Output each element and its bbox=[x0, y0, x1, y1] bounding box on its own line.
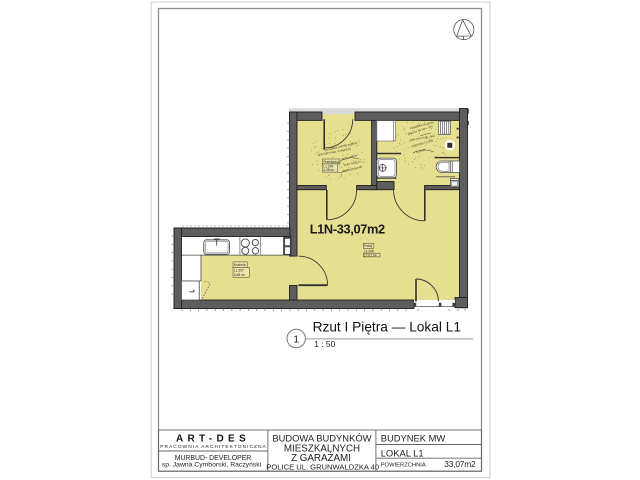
svg-text:1 : 50: 1 : 50 bbox=[314, 339, 335, 349]
svg-text:L1.207: L1.207 bbox=[234, 269, 244, 273]
svg-text:33,07m2: 33,07m2 bbox=[444, 459, 476, 469]
svg-text:4,38 m²: 4,38 m² bbox=[323, 168, 334, 172]
svg-text:1: 1 bbox=[293, 333, 299, 345]
svg-text:sp. Jawna Cymborski, Raczyński: sp. Jawna Cymborski, Raczyński bbox=[162, 462, 262, 469]
svg-text:BUDYNEK MW: BUDYNEK MW bbox=[381, 433, 446, 444]
svg-text:LOKAL L1: LOKAL L1 bbox=[381, 448, 424, 459]
svg-text:6,48 m²: 6,48 m² bbox=[234, 273, 245, 277]
svg-text:L1N-33,07m2: L1N-33,07m2 bbox=[310, 221, 385, 236]
svg-text:17,01 m²: 17,01 m² bbox=[364, 253, 377, 257]
svg-text:Pokój: Pokój bbox=[364, 244, 372, 248]
svg-text:Kuchnia: Kuchnia bbox=[234, 263, 246, 267]
svg-text:PRACOWNIA ARCHITEKTONICZNA: PRACOWNIA ARCHITEKTONICZNA bbox=[160, 444, 267, 450]
svg-text:ART-DES: ART-DES bbox=[176, 433, 250, 444]
svg-text:BUDOWA BUDYNKÓW: BUDOWA BUDYNKÓW bbox=[272, 433, 371, 444]
svg-text:POLICE UL. GRUNWALDZKA 40: POLICE UL. GRUNWALDZKA 40 bbox=[266, 462, 379, 471]
svg-text:Przedpokój: Przedpokój bbox=[323, 160, 339, 164]
svg-text:POWIERZCHNIA: POWIERZCHNIA bbox=[381, 462, 426, 468]
svg-text:Rzut I Piętra — Lokal L1: Rzut I Piętra — Lokal L1 bbox=[313, 320, 461, 335]
